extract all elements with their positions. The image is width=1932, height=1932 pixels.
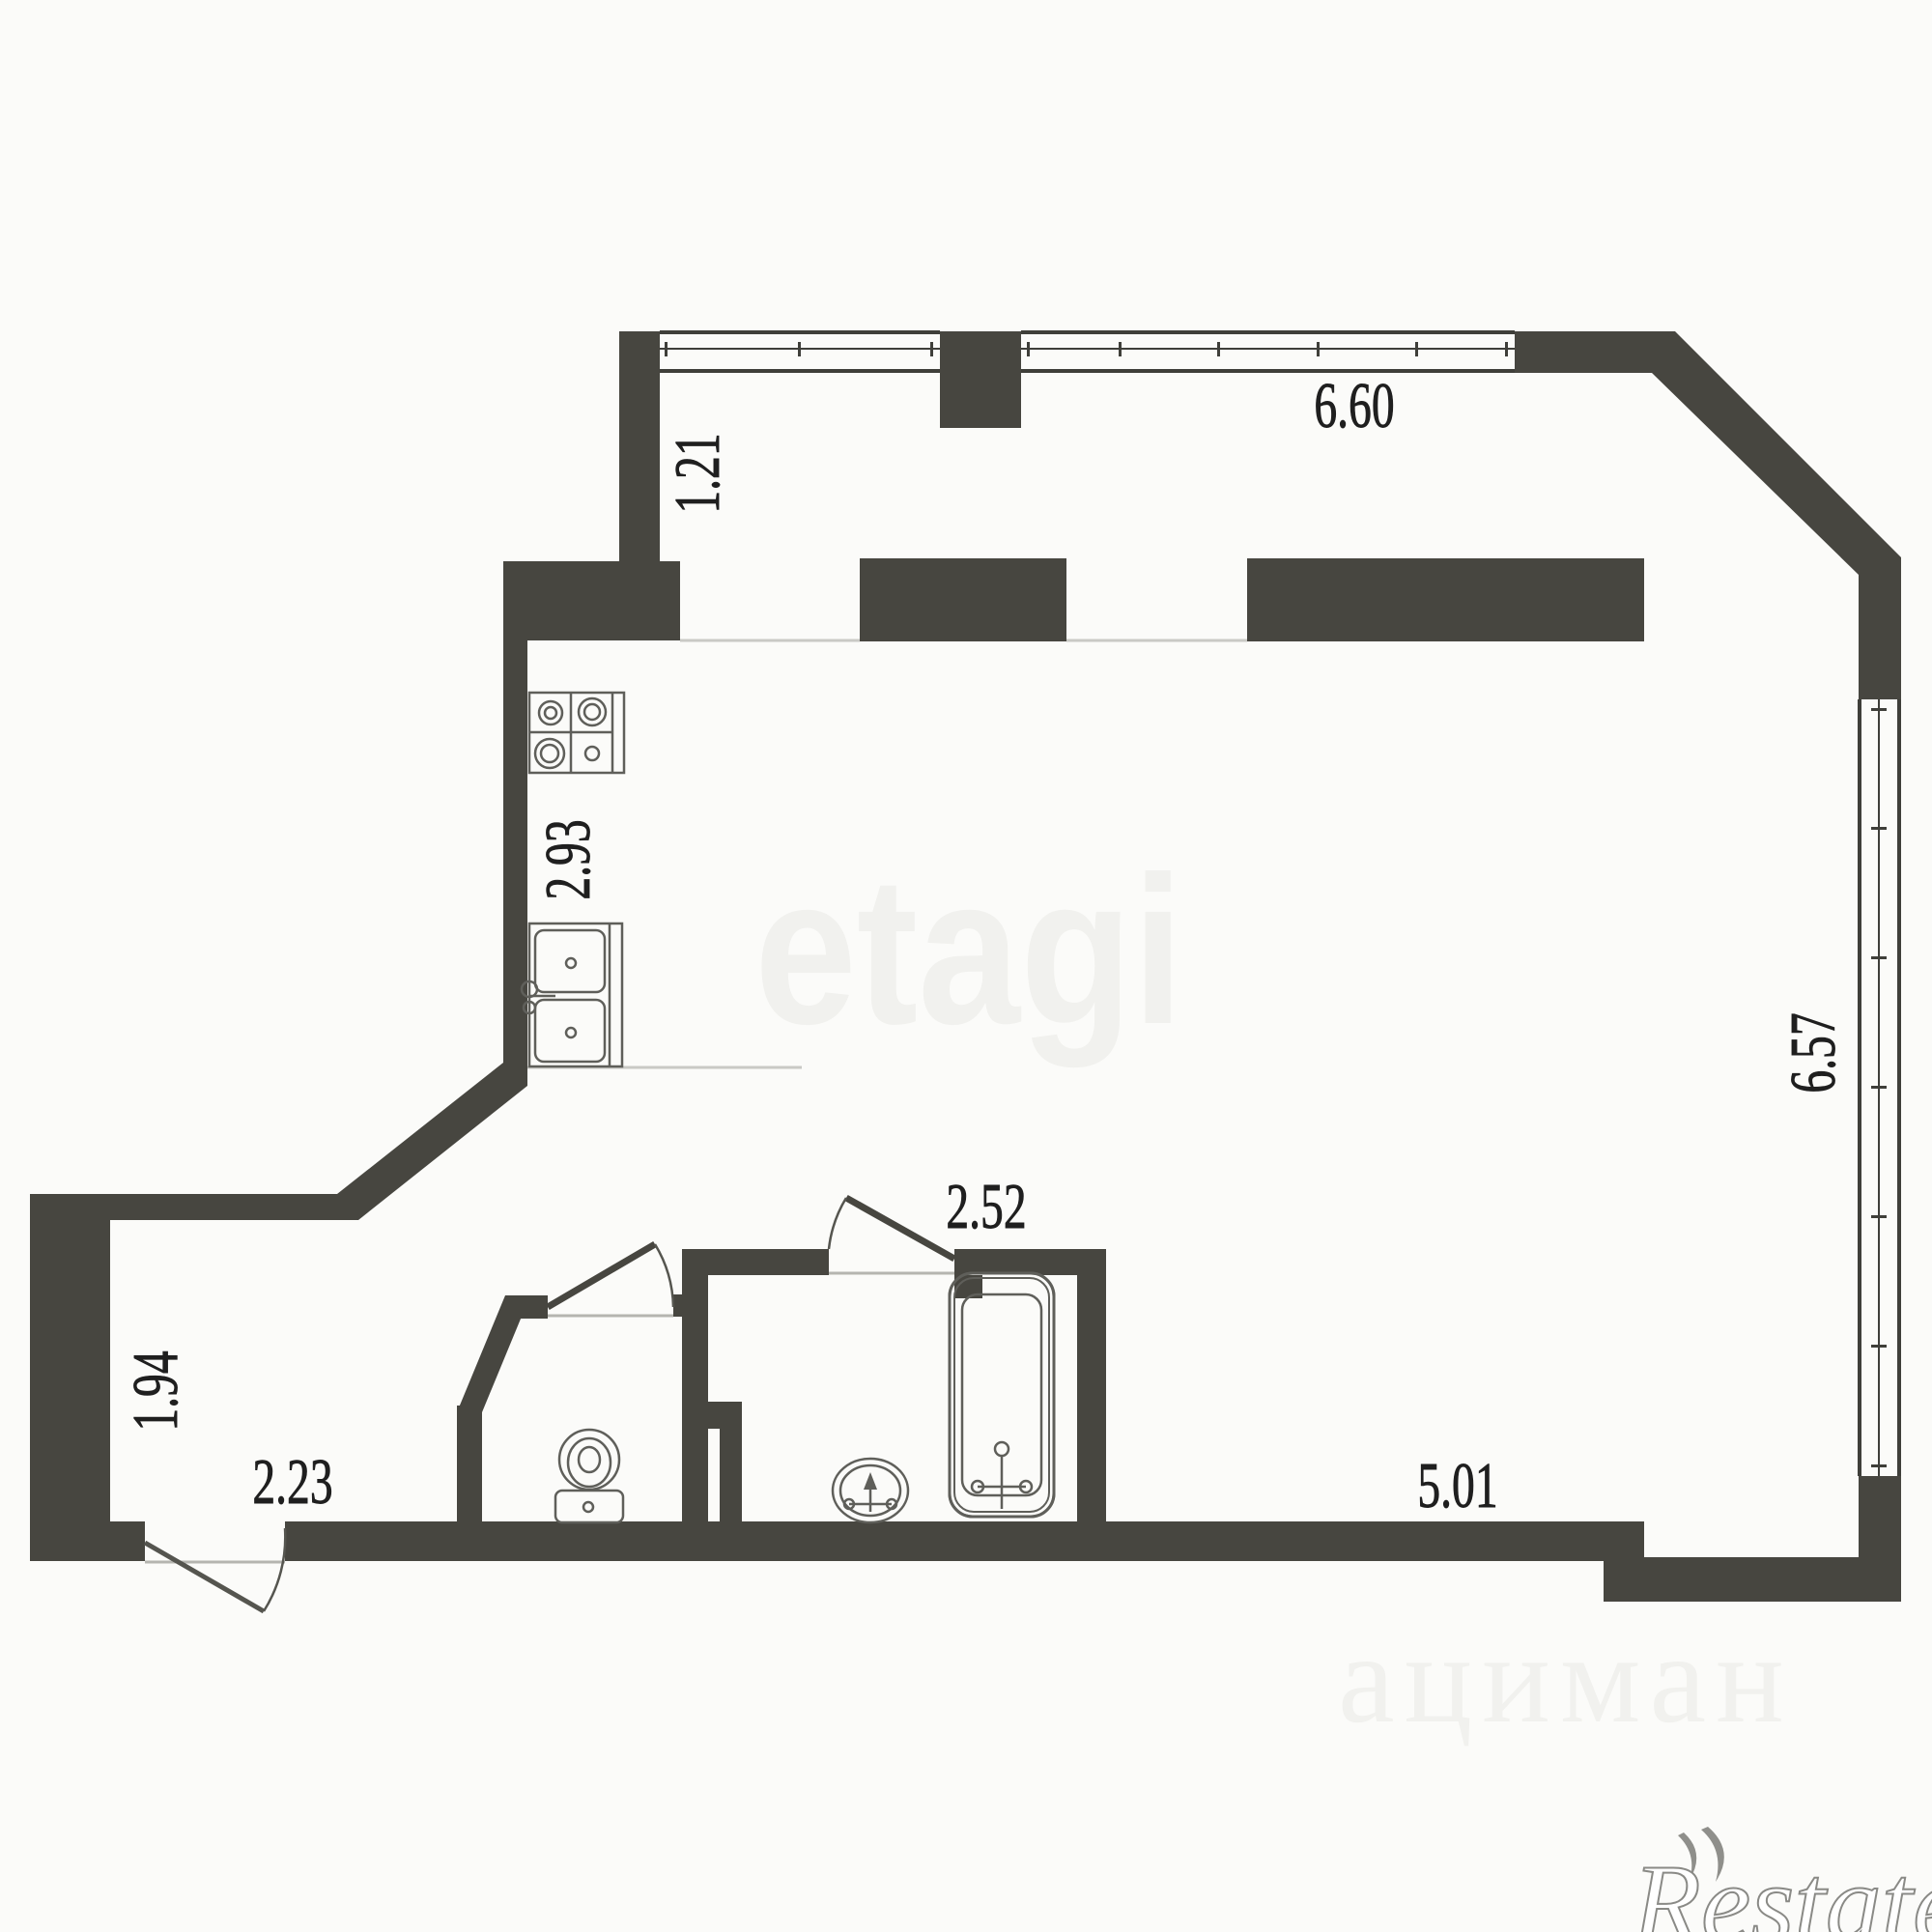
svg-text:2.93: 2.93 [531, 819, 604, 899]
svg-text:6.60: 6.60 [1314, 369, 1394, 441]
svg-text:ациман: ациман [1338, 1607, 1794, 1749]
svg-text:1.94: 1.94 [119, 1350, 191, 1431]
svg-text:1.21: 1.21 [661, 433, 733, 513]
svg-text:5.01: 5.01 [1417, 1449, 1497, 1521]
svg-text:6.57: 6.57 [1776, 1012, 1849, 1093]
svg-text:2.23: 2.23 [252, 1445, 332, 1518]
svg-text:Restate: Restate [1632, 1842, 1932, 1932]
svg-text:2.52: 2.52 [946, 1170, 1026, 1242]
svg-text:etagi: etagi [754, 834, 1183, 1068]
